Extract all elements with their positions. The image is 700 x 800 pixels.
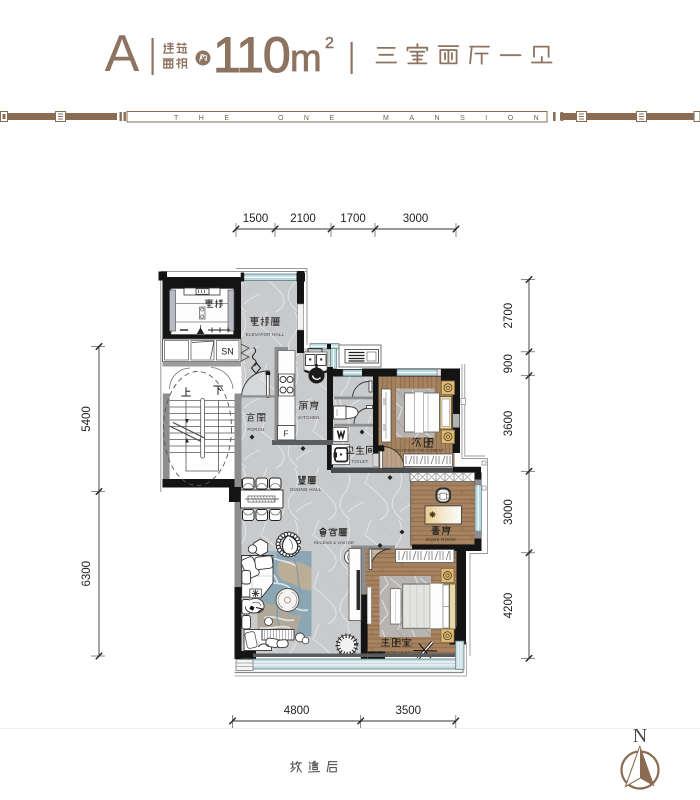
svg-text:DINING HALL: DINING HALL	[290, 487, 322, 492]
svg-text:6300: 6300	[81, 561, 93, 587]
svg-text:N: N	[633, 725, 647, 747]
svg-text:A: A	[105, 25, 140, 83]
svg-text:3000: 3000	[503, 499, 515, 525]
svg-text:BOOK ROOM: BOOK ROOM	[426, 537, 456, 542]
svg-text:2100: 2100	[290, 213, 316, 225]
svg-text:RECEIVE & VISITOR: RECEIVE & VISITOR	[314, 540, 354, 545]
svg-text:KITCHEN: KITCHEN	[298, 415, 319, 420]
svg-text:TOILET: TOILET	[351, 459, 368, 464]
svg-text:3600: 3600	[503, 411, 515, 437]
svg-text:4800: 4800	[284, 705, 310, 717]
svg-text:2: 2	[325, 35, 334, 52]
svg-text:3000: 3000	[403, 213, 429, 225]
svg-text:SN: SN	[221, 347, 234, 357]
svg-text:2700: 2700	[503, 303, 515, 329]
svg-text:m: m	[290, 38, 322, 80]
svg-text:110: 110	[213, 27, 290, 83]
svg-text:1700: 1700	[340, 213, 366, 225]
svg-text:THE ONE MANSION: THE ONE MANSION	[174, 115, 559, 122]
svg-text:900: 900	[503, 354, 515, 373]
svg-text:3500: 3500	[395, 705, 421, 717]
svg-text:4200: 4200	[503, 593, 515, 619]
svg-text:ELEVATOR HALL: ELEVATOR HALL	[246, 332, 285, 337]
svg-text:PORCH: PORCH	[247, 427, 264, 432]
svg-text:5400: 5400	[81, 406, 93, 432]
svg-text:F: F	[284, 430, 289, 439]
svg-text:SECONDARY RECUMBENT: SECONDARY RECUMBENT	[394, 449, 445, 453]
svg-text:1500: 1500	[243, 213, 269, 225]
